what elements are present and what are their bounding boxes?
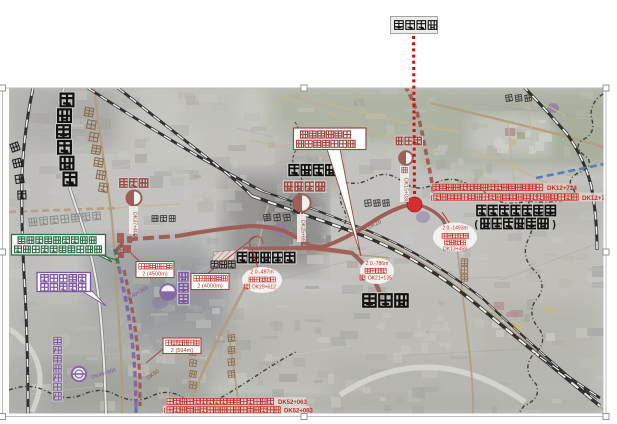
svg-text:2 (594m): 2 (594m) xyxy=(171,348,194,354)
svg-text:2 0.-786m: 2 0.-786m xyxy=(366,261,389,267)
svg-text:2 0.-497m: 2 0.-497m xyxy=(250,270,273,276)
svg-text:2 0.-1493m: 2 0.-1493m xyxy=(442,226,467,232)
svg-text:DK52+063: DK52+063 xyxy=(278,400,308,406)
svg-text:DK12+724: DK12+724 xyxy=(582,195,612,202)
svg-text:DK29+612: DK29+612 xyxy=(252,285,276,291)
svg-text:DK52+063: DK52+063 xyxy=(284,408,314,414)
svg-text:): ) xyxy=(553,220,556,231)
svg-text:2 (4000m): 2 (4000m) xyxy=(197,283,223,289)
svg-text:DK37+400: DK37+400 xyxy=(132,212,138,237)
svg-text:DK21+135: DK21+135 xyxy=(368,276,392,282)
svg-text:DK25+690: DK25+690 xyxy=(300,220,306,245)
svg-text:2 (4500m): 2 (4500m) xyxy=(142,271,168,277)
svg-text:DK13+459: DK13+459 xyxy=(443,246,467,252)
svg-text:DK12+724: DK12+724 xyxy=(547,185,577,192)
svg-text:DK15+030: DK15+030 xyxy=(403,178,409,203)
